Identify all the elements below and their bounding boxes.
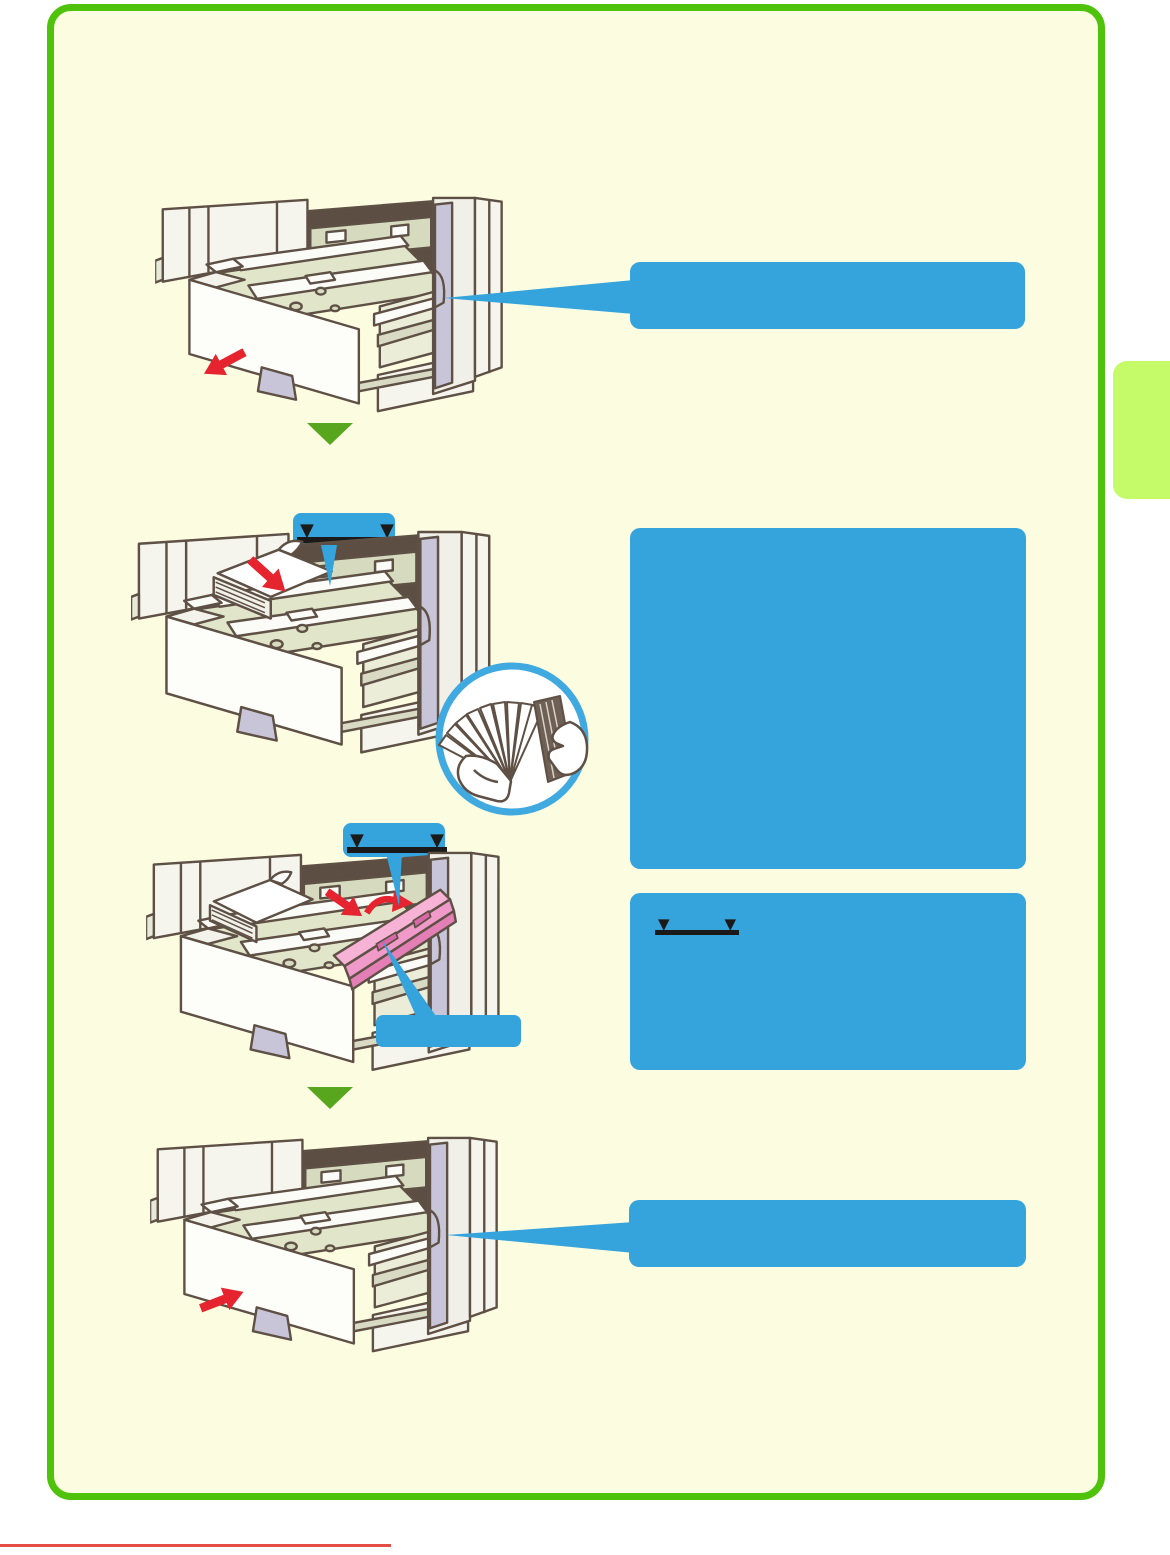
- limit-triangle-left: ▼: [658, 919, 670, 930]
- callout-step1: [630, 262, 1025, 329]
- illustration-adjust-guide: [146, 851, 514, 1093]
- callout-step4: [629, 1200, 1026, 1267]
- callout-guide-label: [376, 1015, 521, 1047]
- step-arrow-down-icon: [307, 1087, 353, 1109]
- footer-link-rule: [0, 1544, 391, 1547]
- callout-pointer-step4: [440, 1205, 640, 1265]
- manual-page: ▼ ▼: [0, 0, 1170, 1555]
- step-arrow-down-icon: [307, 423, 353, 445]
- limit-triangle-left: ▼: [350, 834, 364, 847]
- callout-pointer-guide: [370, 935, 440, 1020]
- tag-pointer-step2: [316, 544, 342, 590]
- tag-pointer-step3: [382, 852, 408, 910]
- callout-pointer-step1: [440, 270, 640, 325]
- limit-triangle-right: ▼: [430, 834, 444, 847]
- page-edge-tab: [1113, 361, 1170, 499]
- fan-paper-inset: [430, 660, 595, 820]
- callout-step2-note: ▼ ▼: [630, 893, 1026, 1070]
- paper-limit-indicator-icon: ▼ ▼: [655, 914, 739, 935]
- paper-limit-indicator-icon: ▼ ▼: [347, 828, 447, 853]
- callout-step2: [630, 528, 1026, 869]
- limit-triangle-right: ▼: [724, 919, 736, 930]
